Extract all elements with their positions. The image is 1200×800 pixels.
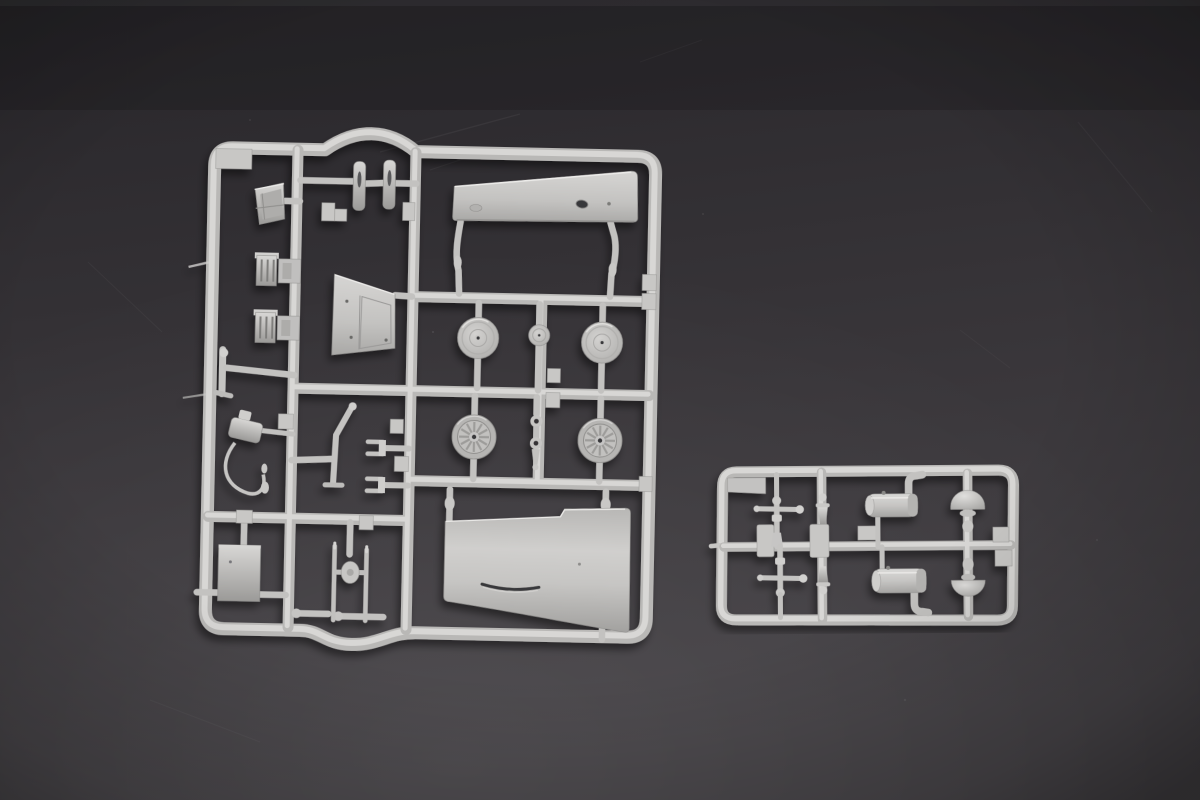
sprue-photo: Overhead product photograph of two light… xyxy=(0,0,1200,800)
photo-canvas: Overhead product photograph of two light… xyxy=(0,0,1200,800)
top-shade xyxy=(0,0,1200,110)
vignette xyxy=(0,0,1200,800)
